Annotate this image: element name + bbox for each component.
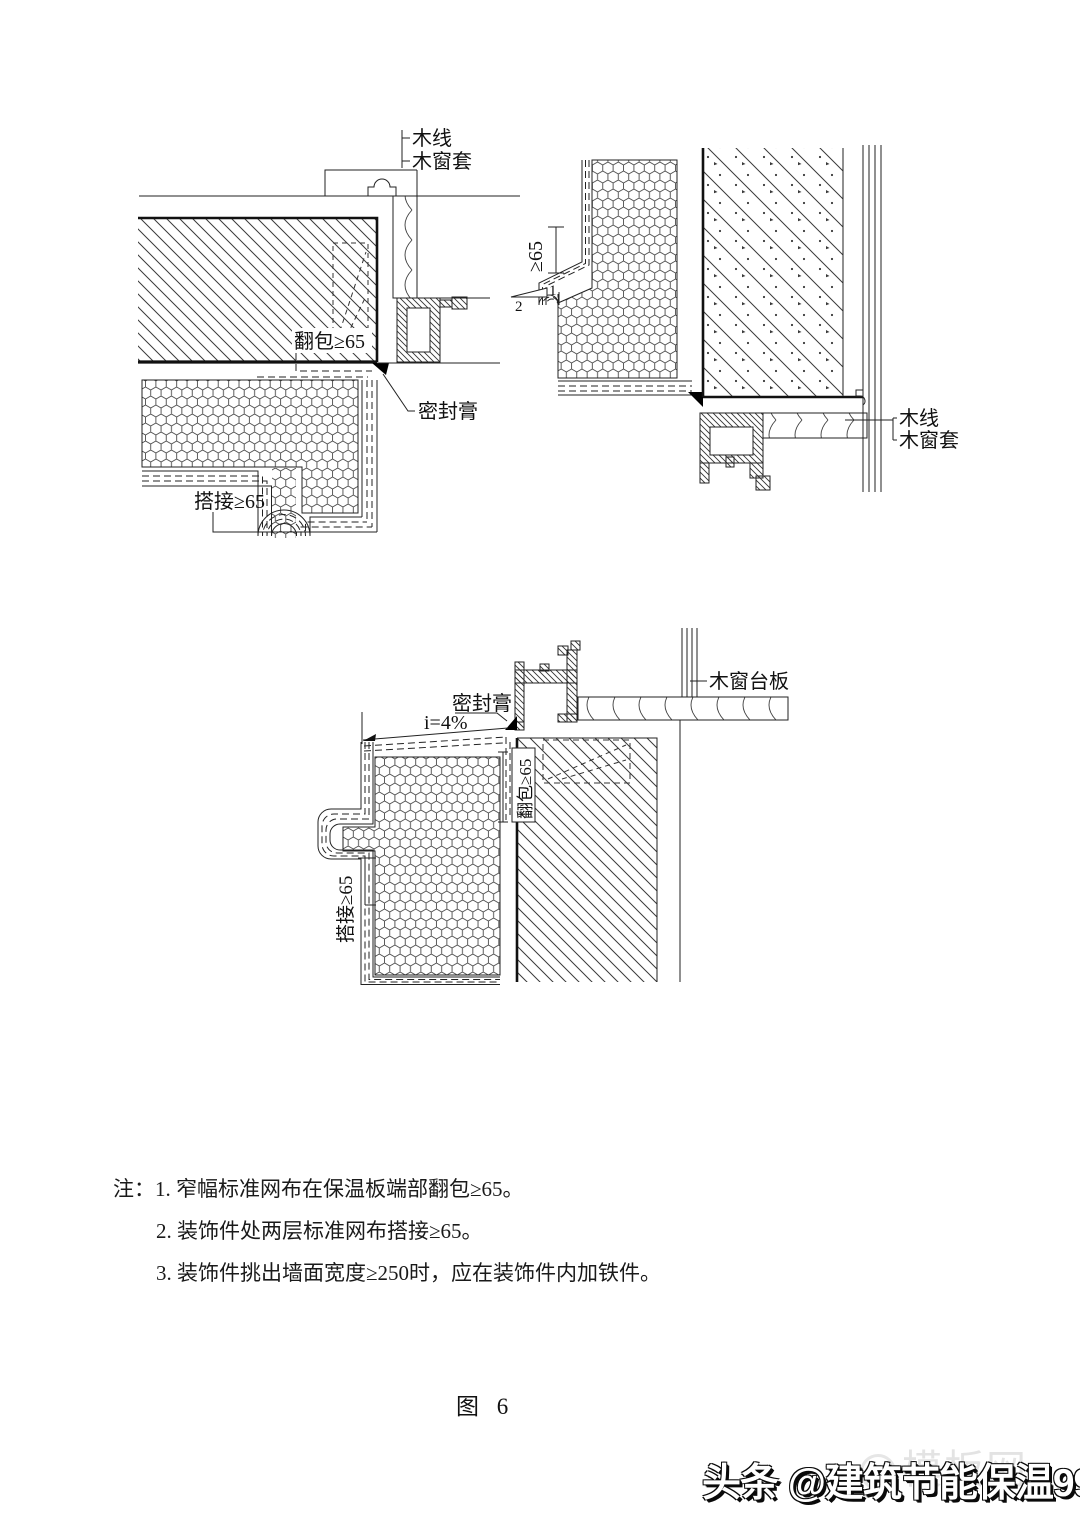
label-overlap-dim: 搭接≥65: [335, 876, 357, 943]
wood-sill-section: [763, 413, 867, 438]
frame-clip: [440, 300, 452, 307]
window-jamb-detail-drawing: ≥65 1 2 木线 木窗套: [511, 145, 959, 492]
watermark-main: 头条 @建筑节能保温99: [702, 1452, 1080, 1508]
sill-upstand-lines: [682, 628, 697, 697]
sealant-triangle: [372, 363, 389, 375]
wood-casing-section: [393, 196, 417, 298]
label-wood-line: 木线: [412, 127, 452, 150]
slope-triangle: [511, 288, 547, 297]
frame-hook: [571, 641, 580, 650]
window-head-detail-drawing: 翻包≥65 密封膏 搭接≥65 木线 木窗套: [138, 127, 520, 538]
frame-right-bar: [567, 650, 577, 722]
note-line-1: 注：1. 窄幅标准网布在保温板端部翻包≥65。: [113, 1174, 753, 1205]
dim-line-65: [548, 227, 564, 273]
frame-tab: [726, 457, 734, 467]
window-frame-profile: [397, 298, 440, 362]
sealant-leader: [383, 374, 415, 411]
label-slope-rise: 1: [549, 283, 557, 299]
note-text: 1. 窄幅标准网布在保温板端部翻包≥65。: [155, 1177, 524, 1201]
label-wood-casing: 木窗套: [412, 150, 472, 173]
label-overlap-dim: 搭接≥65: [194, 490, 265, 513]
frame-foot: [756, 476, 770, 490]
label-slope: i=4%: [424, 712, 468, 734]
frame-clip: [452, 297, 467, 309]
notes-prefix: 注：: [113, 1177, 155, 1201]
label-wrap-dim: 翻包≥65: [294, 330, 365, 353]
label-dim-65: ≥65: [525, 241, 547, 272]
document-page: 翻包≥65 密封膏 搭接≥65 木线 木窗套 ≥65 1 2: [0, 0, 1080, 1527]
mesh-bottom-dashes: [558, 386, 692, 391]
label-wood-line: 木线: [899, 407, 939, 430]
wood-casing-lines: [863, 145, 881, 492]
concrete-wall-region: [703, 148, 843, 397]
note-line-2: 2. 装饰件处两层标准网布搭接≥65。: [113, 1216, 753, 1247]
slope-arrowhead-icon: [363, 734, 376, 741]
casing-step-outline: [325, 170, 417, 196]
sealant-triangle: [688, 392, 703, 407]
label-sill-board: 木窗台板: [709, 670, 789, 693]
frame-foot: [558, 714, 577, 722]
technical-drawing-canvas: 翻包≥65 密封膏 搭接≥65 木线 木窗套 ≥65 1 2: [0, 0, 1080, 1060]
insulation-board: [558, 160, 677, 378]
insulation-tongue: [272, 468, 296, 538]
figure-caption: 图 6: [456, 1387, 514, 1421]
frame-tab: [540, 664, 549, 671]
molding-profile: [368, 179, 396, 196]
frame-hook: [558, 646, 568, 655]
top-label-leaders: [402, 130, 410, 168]
frame-foot: [700, 463, 709, 483]
wall-hatch-region: [517, 738, 657, 982]
insulation-board: [343, 757, 500, 975]
label-wrap-dim: 翻包≥65: [516, 759, 535, 819]
window-sill-detail-drawing: 木窗台板 密封膏 i=4% 翻包≥65 搭接≥65: [318, 628, 789, 985]
label-sealant: 密封膏: [418, 400, 478, 423]
notes: 注：1. 窄幅标准网布在保温板端部翻包≥65。 2. 装饰件处两层标准网布搭接≥…: [113, 1174, 753, 1289]
wood-sill-board: [578, 697, 788, 720]
label-wood-casing: 木窗套: [899, 429, 959, 452]
window-frame-profile: [700, 413, 763, 463]
note-line-3: 3. 装饰件挑出墙面宽度≥250时，应在装饰件内加铁件。: [113, 1258, 753, 1289]
label-slope-run: 2: [515, 299, 523, 315]
